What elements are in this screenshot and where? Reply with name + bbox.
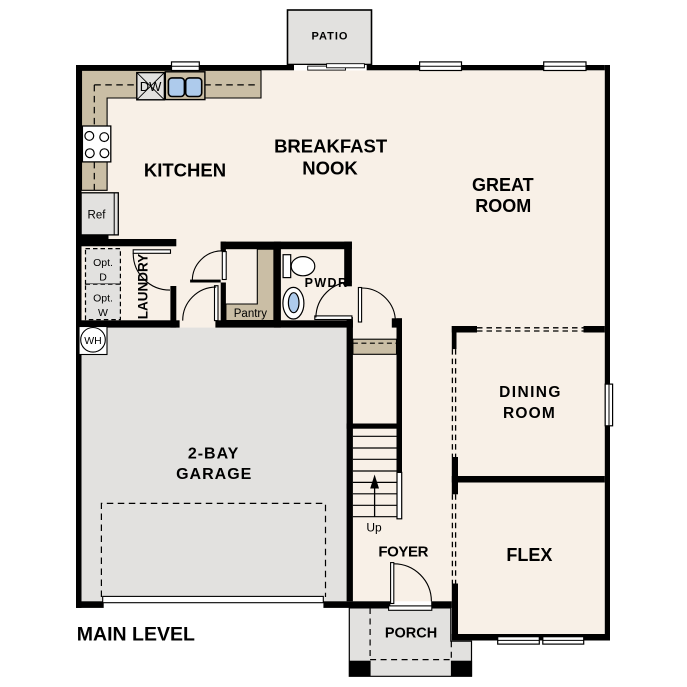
svg-text:PATIO: PATIO [312,31,349,43]
svg-text:D: D [99,272,107,284]
svg-text:Opt.: Opt. [93,257,113,269]
svg-text:ROOM: ROOM [475,196,531,216]
svg-text:Pantry: Pantry [234,308,267,320]
svg-text:BREAKFAST: BREAKFAST [274,136,388,157]
svg-text:LAUNDRY: LAUNDRY [135,254,150,320]
svg-text:KITCHEN: KITCHEN [144,160,226,181]
svg-text:WH: WH [84,335,102,347]
svg-text:W: W [98,307,108,319]
svg-text:DW: DW [140,79,162,94]
svg-text:NOOK: NOOK [302,158,358,179]
svg-text:2-BAY: 2-BAY [188,446,240,463]
svg-text:DINING: DINING [499,384,562,401]
svg-text:Ref: Ref [88,210,107,222]
svg-text:Opt.: Opt. [93,293,113,305]
svg-text:ROOM: ROOM [503,405,556,422]
svg-text:PWDR: PWDR [305,276,349,290]
svg-text:GREAT: GREAT [472,175,534,195]
svg-text:FLEX: FLEX [506,545,552,565]
svg-text:PORCH: PORCH [385,626,437,642]
svg-text:MAIN LEVEL: MAIN LEVEL [77,623,195,645]
svg-text:FOYER: FOYER [378,543,428,560]
svg-text:Up: Up [366,521,382,535]
svg-text:GARAGE: GARAGE [176,466,252,483]
